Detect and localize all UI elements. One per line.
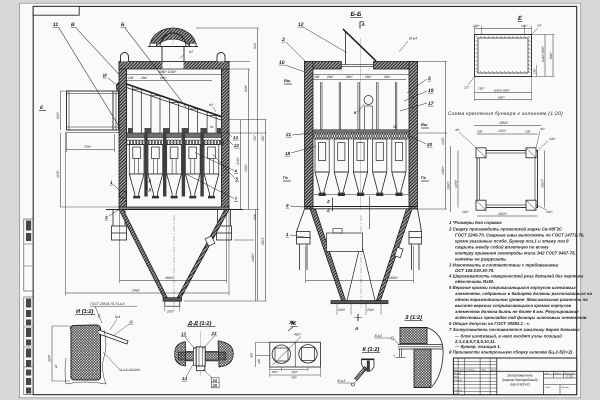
svg-text:А: А (361, 22, 365, 27)
svg-text:18: 18 (285, 151, 291, 156)
svg-text:К3: К3 (209, 103, 213, 107)
svg-text:элементов, собранных в батарею: элементов, собранных в батарею должны ра… (455, 291, 592, 296)
svg-text:2 Сварку производить проволоко: 2 Сварку производить проволокой марки Св… (448, 226, 563, 231)
svg-text:600*: 600* (56, 111, 60, 119)
svg-text:К2: К2 (393, 125, 397, 129)
svg-text:40*: 40* (540, 127, 546, 131)
svg-text:Листов: Листов (560, 386, 569, 389)
svg-text:катеты не разрушать.: катеты не разрушать. (455, 256, 507, 261)
svg-text:Масса: Масса (555, 372, 562, 375)
svg-text:Разраб.: Разраб. (454, 372, 462, 375)
svg-text:к2: к2 (54, 364, 58, 368)
svg-text:20: 20 (426, 142, 433, 147)
svg-text:Т.контр.: Т.контр. (454, 379, 463, 382)
svg-text:Д-Д (1:2): Д-Д (1:2) (187, 320, 211, 327)
svg-text:200*: 200* (166, 310, 175, 314)
svg-text:В-Ь5: В-Ь5 (375, 334, 383, 338)
svg-text:400*: 400* (294, 333, 302, 337)
svg-text:280*: 280* (383, 75, 391, 79)
svg-text:760*: 760* (291, 376, 298, 380)
svg-text:180*: 180* (272, 370, 279, 374)
svg-text:100*: 100* (549, 137, 556, 141)
svg-text:124*: 124* (48, 354, 52, 362)
svg-text:1850*: 1850* (446, 180, 450, 190)
svg-text:Ø-Ь4: Ø-Ь4 (408, 37, 417, 41)
svg-text:К2: К2 (189, 50, 193, 54)
svg-text:5 Верхние кромки соприкасающих: 5 Верхние кромки соприкасающихся корпусо… (449, 285, 576, 290)
svg-text:Изм: Изм (454, 369, 458, 372)
svg-text:2871: 2871 (261, 237, 265, 246)
svg-text:287: 287 (261, 135, 265, 142)
svg-text:280*: 280* (140, 76, 148, 80)
svg-text:ОСТ 108.030.30-79.: ОСТ 108.030.30-79. (455, 268, 494, 273)
svg-text:— бункер, позиция 1.: — бункер, позиция 1. (454, 344, 501, 349)
svg-text:контуру применяя электроды тип: контуру применяя электроды типа Э42 ГОСТ… (455, 250, 576, 255)
svg-text:1150: 1150 (441, 138, 445, 145)
svg-text:100: 100 (477, 130, 483, 134)
svg-text:1: 1 (286, 232, 289, 237)
svg-text:150: 150 (532, 69, 536, 74)
svg-text:№4: №4 (115, 315, 120, 319)
svg-text:200*: 200* (337, 308, 346, 312)
svg-text:Ь410~660*: Ь410~660* (541, 45, 545, 62)
svg-text:1 *Размеры для справок: 1 *Размеры для справок (449, 220, 502, 225)
svg-text:300: 300 (250, 353, 254, 358)
svg-text:200*: 200* (366, 308, 375, 312)
svg-text:1520: 1520 (244, 164, 248, 172)
svg-text:14: 14 (233, 135, 238, 140)
svg-text:2465: 2465 (131, 289, 140, 293)
svg-text:1150: 1150 (56, 171, 60, 178)
svg-text:З (1:2): З (1:2) (405, 314, 422, 321)
svg-text:В-Ь3: В-Ь3 (338, 379, 346, 383)
svg-text:Ь410~660*: Ь410~660* (494, 89, 511, 93)
svg-text:14: 14 (182, 376, 187, 381)
svg-text:100*: 100* (462, 210, 469, 214)
svg-text:16: 16 (129, 320, 133, 324)
svg-text:1150: 1150 (236, 158, 240, 165)
svg-text:Пров.: Пров. (454, 376, 460, 379)
svg-text:№-Ь3-100/200: №-Ь3-100/200 (119, 368, 140, 372)
svg-text:13*: 13* (464, 86, 470, 90)
svg-text:100*: 100* (473, 24, 480, 28)
svg-text:ГОСТ 23518-79-Т1-Ь3: ГОСТ 23518-79-Т1-Ь3 (90, 302, 124, 306)
svg-text:обеспечить Rz50.: обеспечить Rz50. (455, 279, 494, 284)
svg-text:Д: Д (148, 179, 152, 183)
svg-text:1850*: 1850* (499, 121, 509, 125)
svg-text:Золоуловитель: Золоуловитель (507, 374, 533, 378)
svg-text:13: 13 (181, 332, 186, 337)
svg-text:Утв.: Утв. (454, 392, 459, 395)
svg-text:Схема крепления бункера к коло: Схема крепления бункера к колоннам (1:20… (448, 111, 563, 117)
svg-text:600*: 600* (498, 96, 505, 100)
svg-text:158: 158 (314, 75, 320, 79)
svg-text:13*: 13* (537, 24, 543, 28)
svg-text:100*: 100* (521, 24, 528, 28)
svg-text:— блок шлюзовый, в него входят: — блок шлюзовый, в него входят узлы пози… (454, 333, 562, 338)
svg-text:280*: 280* (159, 76, 167, 80)
svg-text:Лист: Лист (544, 386, 551, 389)
svg-text:кроме указанных особо. Бункер: кроме указанных особо. Бункер поз.1 и эт… (455, 238, 569, 243)
svg-text:600*: 600* (549, 52, 553, 59)
svg-text:280*: 280* (326, 75, 334, 79)
svg-text:К (1:2): К (1:2) (363, 346, 380, 353)
svg-text:23: 23 (211, 331, 217, 336)
svg-text:№ докум.: № докум. (466, 369, 476, 372)
svg-text:Гв: Гв (421, 175, 426, 180)
svg-text:1430*: 1430* (251, 252, 255, 262)
svg-text:8 Произвести контрольную сборк: 8 Произвести контрольную сборку шлюзов Б… (449, 349, 573, 354)
svg-text:7 Золоуловитель поставляется з: 7 Золоуловитель поставляется заказчику д… (449, 327, 581, 332)
svg-text:высоте верхних соприкасающихся: высоте верхних соприкасающихся кромок ко… (455, 303, 572, 308)
svg-text:4: 4 (234, 169, 238, 174)
svg-text:сварить между собой вплотную п: сварить между собой вплотную по всему (455, 244, 549, 249)
svg-text:490*: 490* (292, 370, 299, 374)
svg-text:Вш: Вш (421, 122, 428, 127)
svg-text:750*: 750* (84, 145, 92, 149)
svg-text:(каркас батарейный): (каркас батарейный) (502, 378, 537, 382)
svg-text:одном горизонтальном уровне. М: одном горизонтальном уровне. Максимальна… (455, 297, 588, 302)
svg-text:158: 158 (128, 76, 134, 80)
svg-text:150*: 150* (478, 87, 485, 91)
svg-text:элементов должна быть не более: элементов должна быть не более 6 мм. Рег… (455, 309, 579, 314)
svg-text:1610*: 1610* (498, 212, 508, 216)
svg-text:130: 130 (525, 130, 531, 134)
svg-text:280*: 280* (345, 75, 353, 79)
svg-text:3 Изготовить в соответствии с: 3 Изготовить в соответствии с требования… (449, 262, 559, 267)
svg-text:3: 3 (105, 215, 108, 220)
svg-text:И (1:2): И (1:2) (76, 308, 94, 315)
svg-text:1610*: 1610* (540, 178, 544, 188)
svg-text:Н.контр.: Н.контр. (454, 389, 463, 392)
svg-text:21: 21 (285, 132, 292, 137)
svg-text:Лист: Лист (458, 369, 465, 372)
svg-text:280*: 280* (364, 75, 372, 79)
svg-text:асбестовых прокладок под фла: асбестовых прокладок под фланцы шлюзовых… (455, 315, 587, 320)
svg-text:Вш: Вш (284, 78, 291, 83)
svg-text:1830*: 1830* (389, 276, 399, 280)
svg-text:25: 25 (212, 383, 218, 388)
svg-text:Дата: Дата (490, 369, 497, 372)
svg-text:514: 514 (253, 43, 257, 49)
svg-text:Д: Д (326, 209, 330, 213)
svg-text:604*: 604* (244, 84, 248, 92)
svg-text:Д: Д (148, 188, 152, 192)
svg-text:Б-Б: Б-Б (351, 11, 362, 18)
svg-text:1:10: 1:10 (566, 375, 573, 379)
svg-text:4 Шероховатость поверхностей р: 4 Шероховатость поверхностей реза детале… (448, 273, 584, 278)
svg-text:206: 206 (253, 214, 257, 221)
svg-text:1830*: 1830* (165, 276, 175, 280)
svg-text:Лит.: Лит. (544, 372, 550, 375)
svg-text:1: 1 (110, 180, 113, 185)
svg-text:4080~1130*: 4080~1130* (158, 70, 177, 74)
svg-text:1370*: 1370* (454, 179, 458, 188)
svg-text:1370*: 1370* (498, 129, 507, 133)
svg-text:БЦ-2-5(3+2): БЦ-2-5(3+2) (510, 383, 529, 387)
svg-text:767: 767 (253, 135, 257, 141)
svg-text:180: 180 (257, 359, 261, 364)
svg-text:Гв: Гв (283, 175, 288, 180)
svg-text:1430*: 1430* (441, 165, 445, 175)
svg-text:6 Общие допуски по ГОСТ 30893.: 6 Общие допуски по ГОСТ 30893.1 - с. (449, 321, 530, 326)
svg-text:40*: 40* (455, 128, 461, 132)
svg-text:ГОСТ 2246-70. Сварные швы выпо: ГОСТ 2246-70. Сварные швы выполнять по Г… (455, 232, 584, 237)
svg-text:22: 22 (233, 143, 239, 148)
svg-text:А: А (354, 326, 358, 331)
svg-text:К1: К1 (210, 125, 214, 129)
svg-text:9: 9 (286, 203, 289, 208)
svg-text:Подп.: Подп. (481, 369, 487, 372)
svg-text:100*: 100* (546, 210, 553, 214)
svg-text:Д: Д (326, 200, 330, 204)
